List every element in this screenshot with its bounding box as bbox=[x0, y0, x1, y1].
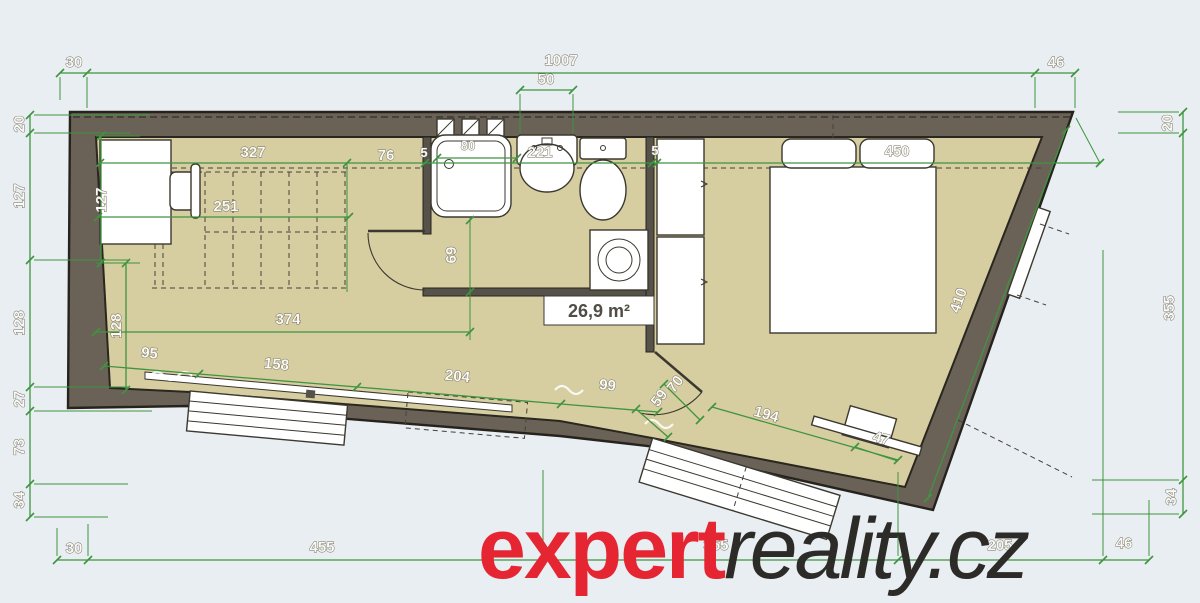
dim-label: 46 bbox=[1048, 54, 1065, 71]
dim-label: 20 bbox=[1159, 115, 1176, 132]
floor-plan: 30 1007 46 50 20 127 128 27 73 34 20 355… bbox=[0, 0, 1200, 603]
dim-label: 455 bbox=[309, 539, 334, 556]
watermark-dark: reality.cz bbox=[724, 501, 1029, 597]
dim-label: 30 bbox=[66, 54, 83, 71]
dim-label: 34 bbox=[1163, 488, 1180, 505]
dim-label: 20 bbox=[11, 116, 28, 133]
dim-label: 99 bbox=[598, 376, 616, 395]
board-bracket bbox=[306, 390, 316, 399]
dim-label: 73 bbox=[11, 439, 28, 456]
washing-machine-icon bbox=[590, 230, 648, 290]
bed bbox=[770, 139, 936, 333]
dim-label: 128 bbox=[108, 313, 125, 338]
dim-label: 158 bbox=[263, 355, 290, 375]
chair bbox=[170, 164, 200, 218]
desk bbox=[100, 140, 171, 244]
dim-label: 50 bbox=[538, 71, 555, 88]
floor-plan-page: 30 1007 46 50 20 127 128 27 73 34 20 355… bbox=[0, 0, 1200, 603]
dim-label: 127 bbox=[93, 187, 110, 212]
dim-label: 69 bbox=[443, 247, 460, 264]
dim-label: 27 bbox=[11, 391, 28, 408]
dim-label: 450 bbox=[884, 143, 909, 160]
wardrobe bbox=[657, 139, 707, 344]
dim-label: 327 bbox=[240, 144, 265, 161]
dim-label: 251 bbox=[213, 198, 238, 215]
dim-label: 127 bbox=[11, 183, 28, 208]
toilet-icon bbox=[580, 138, 626, 220]
dim-label: 5 bbox=[420, 145, 427, 160]
watermark: expertreality.cz bbox=[478, 501, 1029, 597]
dim-label: 46 bbox=[1116, 535, 1133, 552]
dim-label: 95 bbox=[140, 344, 158, 363]
watermark-red: expert bbox=[478, 501, 725, 597]
area-label: 26,9 m² bbox=[568, 301, 630, 321]
roof-window-icons bbox=[437, 119, 504, 136]
dim-label: 30 bbox=[66, 540, 83, 557]
dim-label: 5 bbox=[651, 143, 658, 158]
dim-label: 355 bbox=[1161, 295, 1178, 320]
dim-label: 374 bbox=[275, 311, 301, 328]
dim-label: 80 bbox=[461, 138, 475, 153]
dim-label: 128 bbox=[11, 310, 28, 335]
dim-label: 1007 bbox=[544, 52, 577, 69]
area-badge: 26,9 m² bbox=[544, 296, 654, 325]
dim-label: 76 bbox=[378, 147, 395, 164]
dim-label: 221 bbox=[527, 144, 552, 161]
dim-label: 34 bbox=[11, 491, 28, 508]
dim-label: 204 bbox=[444, 367, 471, 387]
